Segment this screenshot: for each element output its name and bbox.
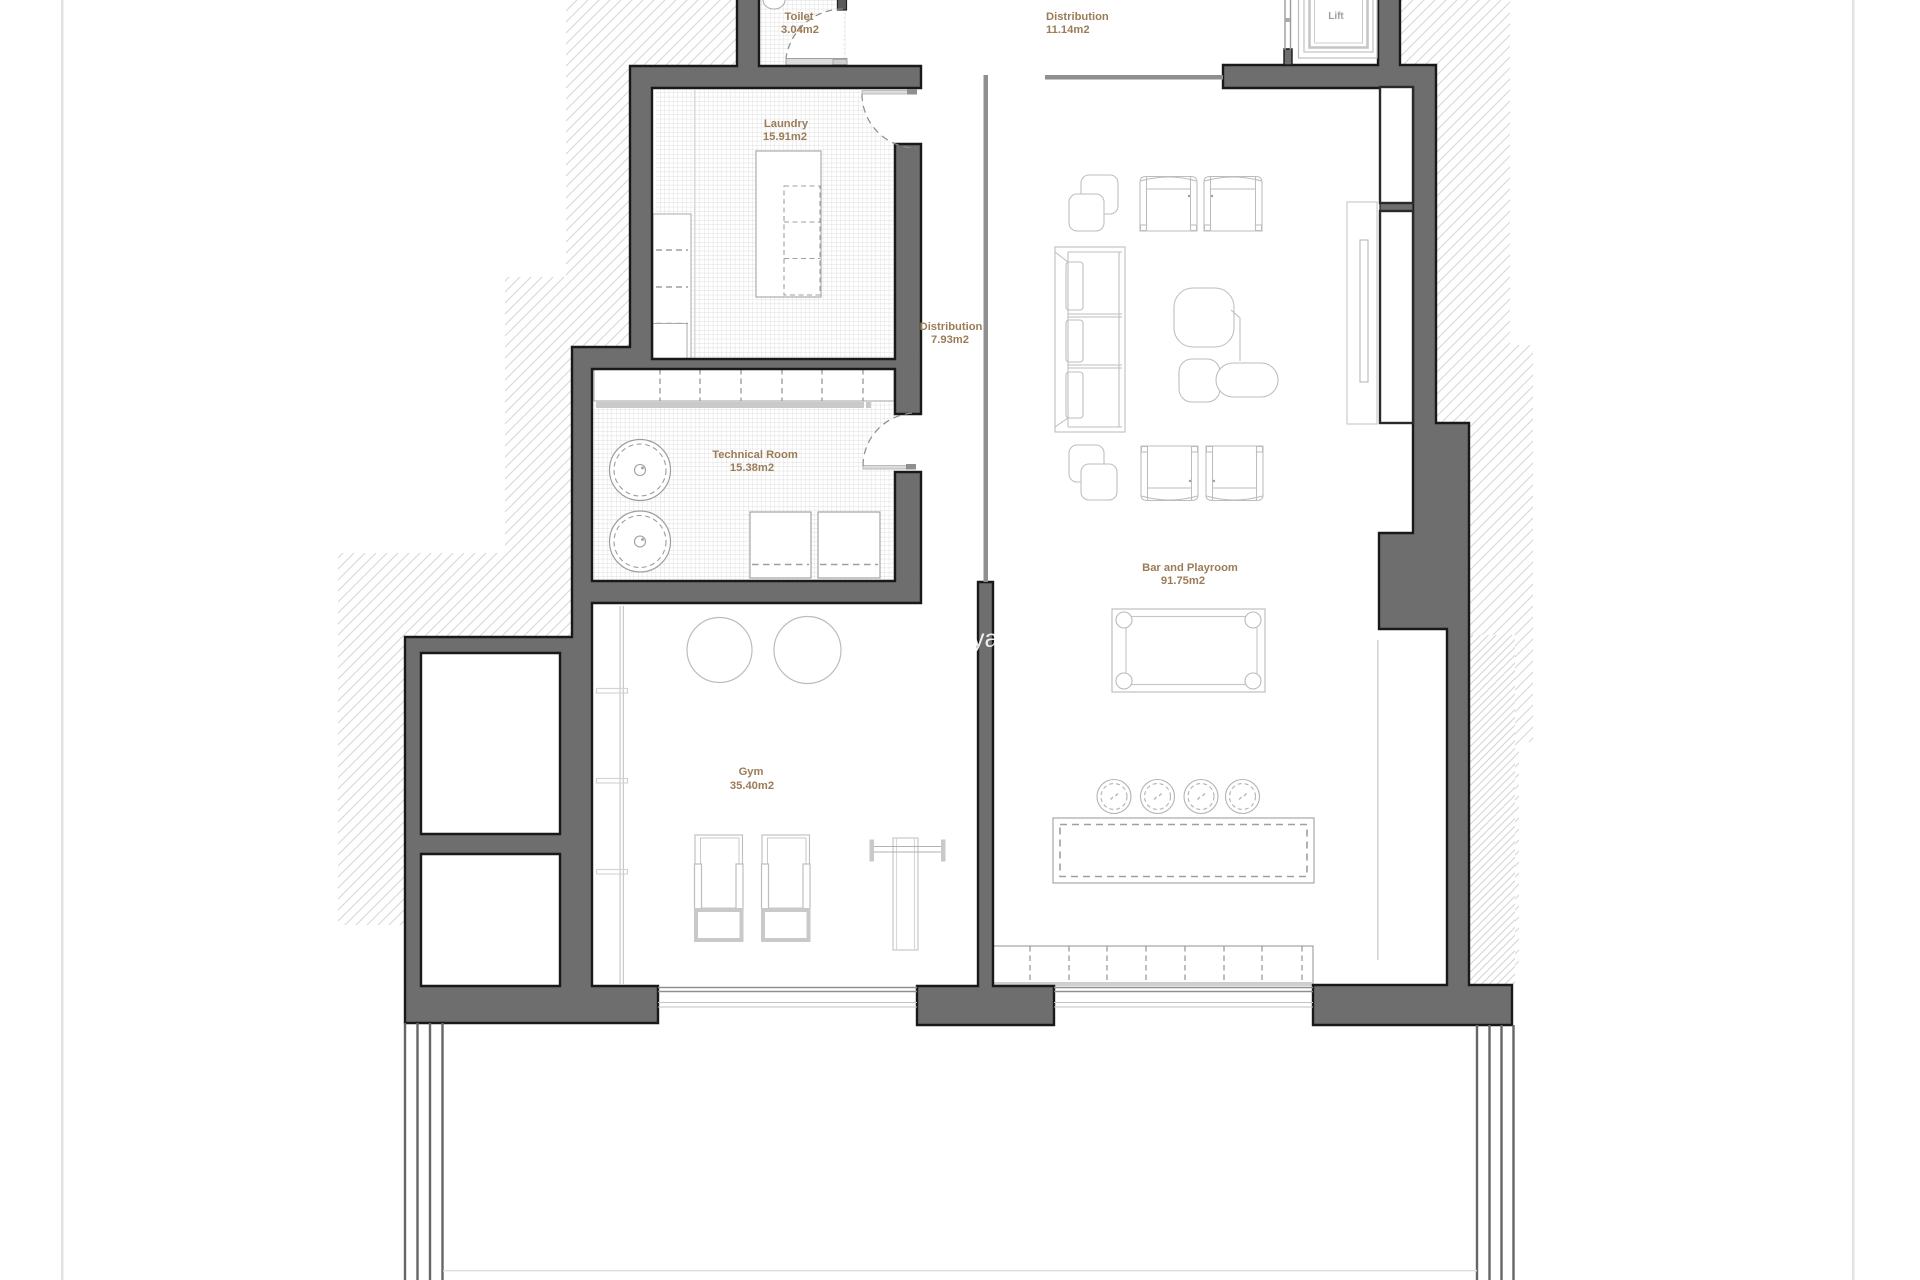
svg-text:Bar and Playroom: Bar and Playroom: [1142, 562, 1238, 574]
svg-text:15.91m2: 15.91m2: [763, 131, 807, 143]
svg-text:35.40m2: 35.40m2: [730, 780, 774, 792]
svg-text:Distribution: Distribution: [1046, 11, 1109, 23]
svg-text:Laundry: Laundry: [764, 118, 809, 130]
svg-text:3.04m2: 3.04m2: [781, 24, 819, 36]
svg-text:Technical Room: Technical Room: [712, 449, 798, 461]
svg-text:Lift: Lift: [1328, 11, 1344, 22]
svg-text:7.93m2: 7.93m2: [931, 334, 969, 346]
svg-text:11.14m2: 11.14m2: [1046, 24, 1090, 36]
svg-text:Gym: Gym: [739, 766, 764, 778]
svg-text:91.75m2: 91.75m2: [1161, 575, 1205, 587]
svg-text:15.38m2: 15.38m2: [730, 462, 774, 474]
svg-text:Distribution: Distribution: [920, 321, 983, 333]
svg-text:ya: ya: [972, 625, 999, 653]
svg-text:Toilet: Toilet: [784, 11, 813, 23]
